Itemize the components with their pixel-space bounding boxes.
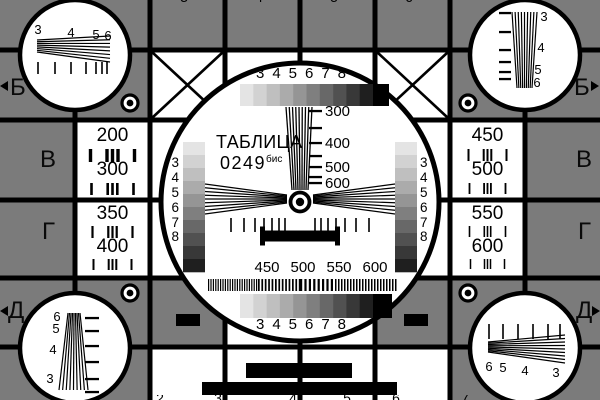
- res-cell-500: 500: [452, 160, 523, 179]
- grayscale-bar-top: [240, 84, 389, 106]
- flank-rect-left: [176, 314, 200, 326]
- tr-wedge-label: 6: [532, 76, 542, 89]
- top-edge-digit-fragment: 5: [328, 0, 340, 4]
- top-grayscale-labels: 345678: [256, 66, 346, 81]
- res-cell-300: 300: [77, 160, 148, 179]
- card-number-value: 0249: [220, 153, 266, 173]
- flank-rect-right: [404, 314, 428, 326]
- freq-label-400: 400: [325, 136, 350, 151]
- row-letter-left-b: Б: [10, 76, 26, 100]
- test-card-graphics: [0, 0, 600, 400]
- bl-wedge-label: 3: [45, 372, 55, 385]
- top-edge-digit-fragment: 6: [403, 0, 415, 4]
- bottom-edge-digit-fragment: 6: [390, 395, 402, 400]
- bottom-edge-digit-fragment: 2: [154, 395, 166, 400]
- arrow-right-icon: [592, 306, 600, 316]
- br-wedge-label: 5: [498, 361, 508, 374]
- bottom-edge-digit-fragment: 4: [287, 395, 299, 400]
- res-cell-450: 450: [452, 126, 523, 145]
- left-grayscale-labels: 345678: [166, 156, 179, 244]
- freq-label-600: 600: [325, 176, 350, 191]
- corner-circle-bottom-right: [470, 293, 580, 400]
- res-cell-350: 350: [77, 204, 148, 223]
- tl-wedge-label: 4: [66, 26, 76, 39]
- row-letter-right-v: В: [576, 148, 592, 172]
- registration-target: [460, 95, 476, 111]
- bottom-edge-digit-fragment: 3: [212, 395, 224, 400]
- row-letter-right-g: Г: [578, 220, 591, 244]
- res-cell-600: 600: [452, 237, 523, 256]
- card-title: ТАБЛИЦА: [216, 133, 302, 151]
- row-letter-right-d: Д: [576, 299, 592, 323]
- grayscale-bar-bottom: [240, 294, 392, 318]
- res-cell-200: 200: [77, 126, 148, 145]
- top-edge-digit-fragment: 4: [253, 0, 265, 4]
- freq-label-500: 500: [325, 160, 350, 175]
- row-letter-left-v: В: [40, 148, 56, 172]
- br-wedge-label: 4: [520, 364, 530, 377]
- right-grayscale-labels: 345678: [420, 156, 433, 244]
- arrow-left-icon: [0, 306, 8, 316]
- arrow-right-icon: [591, 81, 599, 91]
- tl-wedge-label: 5: [91, 28, 101, 41]
- br-wedge-label: 6: [484, 360, 494, 373]
- grayscale-bar-left: [183, 142, 205, 272]
- streaking-bar-short: [246, 363, 352, 378]
- freq-label-300: 300: [325, 104, 350, 119]
- card-number-suffix: бис: [266, 154, 282, 165]
- tl-wedge-label: 6: [103, 29, 113, 42]
- row-letter-left-d: Д: [8, 299, 24, 323]
- bottom-grayscale-labels: 345678: [256, 317, 346, 332]
- center-registration-target: [291, 193, 310, 212]
- bottom-edge-digit-fragment: 7: [459, 395, 471, 400]
- arrow-left-icon: [0, 81, 8, 91]
- burst-labels: 450500550600: [249, 260, 393, 275]
- res-cell-550: 550: [452, 204, 523, 223]
- grayscale-bar-right: [395, 142, 417, 272]
- bl-wedge-label: 5: [51, 322, 61, 335]
- bl-wedge-label: 4: [48, 343, 58, 356]
- tr-wedge-label: 3: [539, 10, 549, 23]
- corner-circle-bottom-left: [20, 293, 130, 400]
- registration-target: [122, 285, 138, 301]
- tv-test-card: ТАБЛИЦА 0249бис 345678 345678 345678 345…: [0, 0, 600, 400]
- res-cell-400: 400: [77, 237, 148, 256]
- card-number: 0249бис: [220, 154, 282, 172]
- registration-target: [122, 95, 138, 111]
- bottom-edge-digit-fragment: 5: [341, 395, 353, 400]
- row-letter-right-b: Б: [574, 76, 590, 100]
- tl-wedge-label: 3: [33, 23, 43, 36]
- registration-target: [460, 285, 476, 301]
- streaking-bar-long: [202, 382, 397, 395]
- br-wedge-label: 3: [551, 366, 561, 379]
- top-edge-digit-fragment: 3: [178, 0, 190, 4]
- tr-wedge-label: 4: [536, 41, 546, 54]
- row-letter-left-g: Г: [42, 220, 55, 244]
